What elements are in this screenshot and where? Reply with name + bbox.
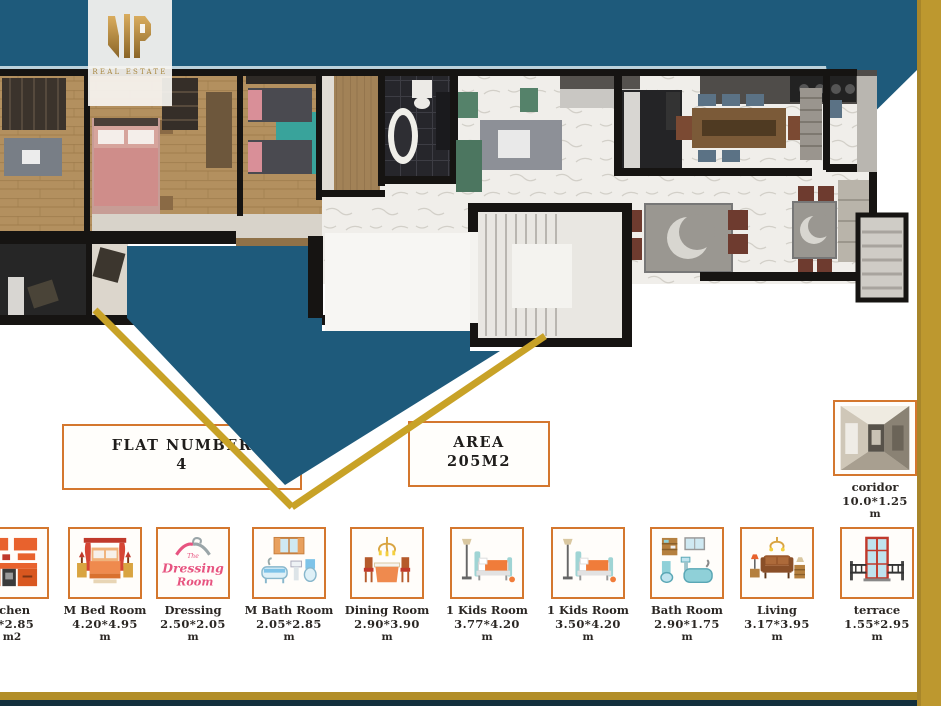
room-dimensions: 3.77*4.20 [437, 617, 537, 631]
corridor-photo-icon [839, 406, 911, 470]
room-unit: m [239, 631, 339, 644]
room-name: 1 Kids Room [437, 603, 537, 617]
room-tile-box [450, 527, 524, 599]
room-name: Living [727, 603, 827, 617]
room-tile-box [350, 527, 424, 599]
room-name: 1 Kids Room [538, 603, 638, 617]
master-bath-icon [260, 536, 318, 590]
room-tile-box [252, 527, 326, 599]
room-tile-master-bath: M Bath Room 2.05*2.85 m [252, 527, 326, 599]
bath-icon [658, 536, 716, 590]
room-unit: m [143, 631, 243, 644]
room-dimensions: 10.0*1.25 [825, 494, 925, 508]
room-unit: m [538, 631, 638, 644]
room-name: tchen [0, 603, 62, 617]
room-dimensions: 4.20*4.95 [55, 617, 155, 631]
room-tile-box [740, 527, 814, 599]
room-tile-bath: Bath Room 2.90*1.75 m [650, 527, 724, 599]
dining-room-icon [358, 536, 416, 590]
room-unit: m [437, 631, 537, 644]
room-dimensions: 2.90*3.90 [337, 617, 437, 631]
room-tile-dining: Dining Room 2.90*3.90 m [350, 527, 424, 599]
room-tile-box [0, 527, 49, 599]
room-tile-kids-1: 1 Kids Room 3.77*4.20 m [450, 527, 524, 599]
bottom-navy-bar [0, 700, 941, 706]
living-sofa-icon [748, 536, 806, 590]
room-unit: m [637, 631, 737, 644]
flat-number-label: FLAT NUMBER [64, 437, 300, 454]
room-dimensions: 2.05*2.85 [239, 617, 339, 631]
room-tile-dressing: The Dressing Room Dressing 2.50*2.05 m [156, 527, 230, 599]
bottom-gold-bar [0, 692, 941, 700]
vip-logo-icon [104, 14, 156, 62]
corridor-tile: coridor 10.0*1.25 m [833, 400, 917, 476]
room-tile-master-bedroom: M Bed Room 4.20*4.95 m [68, 527, 142, 599]
room-unit: m [825, 508, 925, 521]
master-bed-icon [76, 536, 134, 590]
flat-number-value: 4 [64, 456, 300, 473]
dressing-logo-dressing: Dressing [162, 560, 224, 575]
room-unit: m [337, 631, 437, 644]
terrace-door-icon [848, 536, 906, 590]
flat-number-box: FLAT NUMBER 4 [62, 424, 302, 490]
dressing-room-icon: The Dressing Room [162, 534, 224, 592]
room-dimensions: 2.50*2.05 [143, 617, 243, 631]
room-unit: m [55, 631, 155, 644]
logo-subtitle: REAL ESTATE [88, 68, 172, 76]
room-tile-kitchen: tchen 5*2.85 m2 [0, 527, 49, 599]
room-tile-box [551, 527, 625, 599]
room-name: terrace [827, 603, 927, 617]
room-name: Dressing [143, 603, 243, 617]
room-dimensions: 5*2.85 [0, 617, 62, 631]
room-name: coridor [825, 480, 925, 494]
room-tile-living: Living 3.17*3.95 m [740, 527, 814, 599]
vip-logo-card: REAL ESTATE [88, 0, 172, 106]
kids-bed-icon [458, 536, 516, 590]
room-tile-box: The Dressing Room [156, 527, 230, 599]
room-dimensions: 1.55*2.95 [827, 617, 927, 631]
room-tile-kids-2: 1 Kids Room 3.50*4.20 m [551, 527, 625, 599]
room-name: Bath Room [637, 603, 737, 617]
room-dimensions: 3.17*3.95 [727, 617, 827, 631]
kids-bed-icon [559, 536, 617, 590]
dressing-logo-the: The [187, 553, 199, 560]
room-name: M Bed Room [55, 603, 155, 617]
room-tile-box [840, 527, 914, 599]
room-tile-terrace: terrace 1.55*2.95 m [840, 527, 914, 599]
area-value: 205M2 [410, 453, 548, 470]
room-unit: m2 [0, 631, 62, 644]
dressing-logo-room: Room [176, 575, 214, 589]
room-tile-box [650, 527, 724, 599]
room-unit: m [827, 631, 927, 644]
room-dimensions: 2.90*1.75 [637, 617, 737, 631]
real-estate-flyer: { "header": { "logo_monogram": "VIP", "l… [0, 0, 941, 706]
area-box: AREA 205M2 [408, 421, 550, 487]
room-dimensions: 3.50*4.20 [538, 617, 638, 631]
room-name: Dining Room [337, 603, 437, 617]
corridor-tile-box [833, 400, 917, 476]
room-unit: m [727, 631, 827, 644]
kitchen-icon [0, 536, 41, 590]
room-tile-box [68, 527, 142, 599]
area-label: AREA [410, 434, 548, 451]
room-name: M Bath Room [239, 603, 339, 617]
